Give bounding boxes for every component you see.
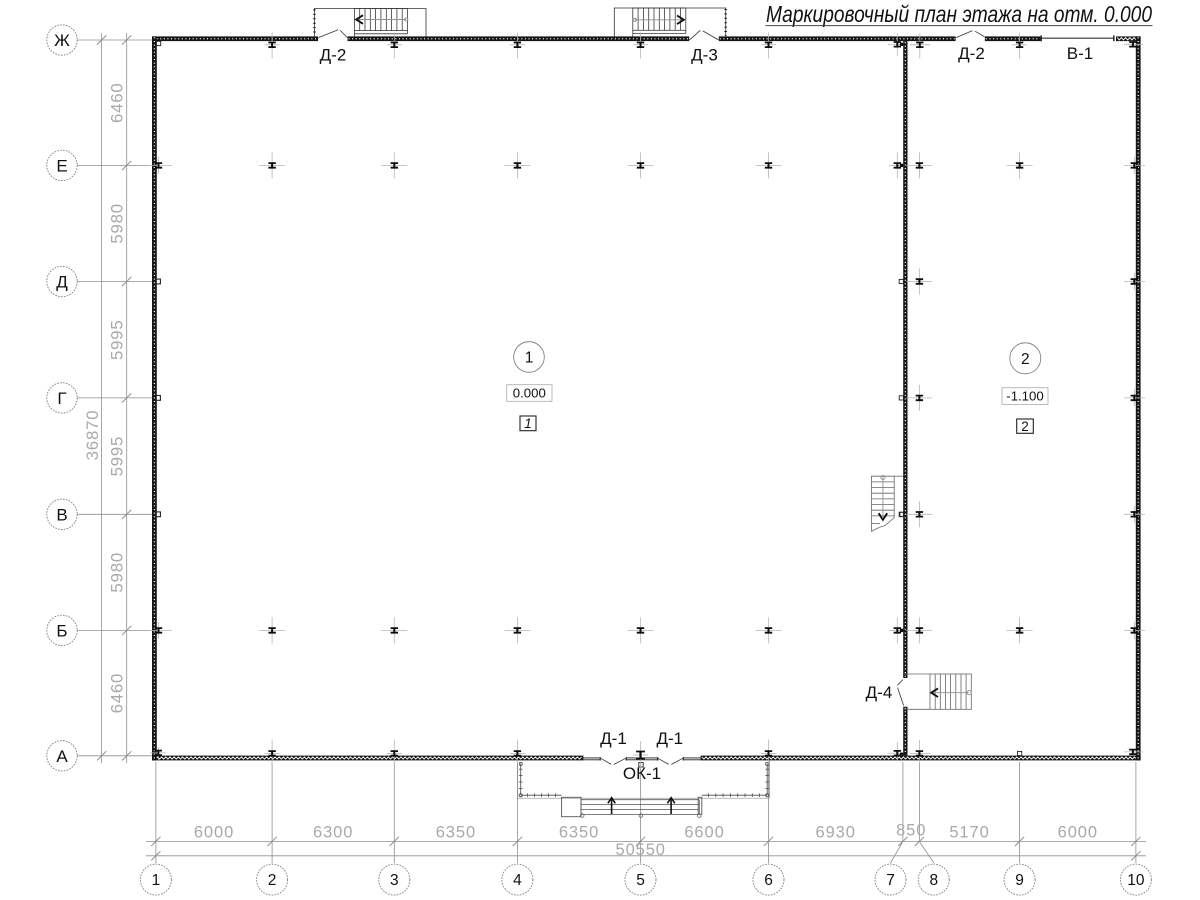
svg-text:6350: 6350 [436,824,476,842]
svg-text:6: 6 [764,872,773,889]
svg-text:6600: 6600 [684,824,724,842]
svg-text:1: 1 [152,872,161,889]
svg-text:8: 8 [929,872,938,889]
svg-text:Д-3: Д-3 [691,46,718,65]
svg-text:Маркировочный план этажа на от: Маркировочный план этажа на отм. 0.000 [766,1,1152,27]
svg-text:Д-1: Д-1 [600,729,627,748]
svg-text:10: 10 [1127,872,1145,889]
svg-text:Б: Б [56,622,67,641]
svg-text:6460: 6460 [108,82,127,123]
svg-text:Д-4: Д-4 [866,683,893,702]
svg-text:0.000: 0.000 [513,386,546,401]
svg-text:6300: 6300 [313,824,353,842]
svg-text:6000: 6000 [1058,824,1098,842]
svg-text:1: 1 [524,416,532,431]
svg-text:1: 1 [525,350,534,367]
svg-text:В-1: В-1 [1067,44,1093,63]
svg-text:9: 9 [1015,872,1024,889]
svg-text:850: 850 [896,822,926,840]
svg-text:6000: 6000 [194,824,234,842]
svg-text:-1.100: -1.100 [1006,389,1043,404]
svg-text:Д: Д [56,273,68,292]
svg-text:5995: 5995 [108,436,127,477]
svg-text:3: 3 [390,872,399,889]
svg-text:2: 2 [1021,351,1030,368]
svg-text:2: 2 [268,872,277,889]
svg-text:36870: 36870 [83,410,102,461]
svg-text:Д-2: Д-2 [320,46,347,65]
svg-text:6930: 6930 [816,824,856,842]
svg-text:7: 7 [886,872,895,889]
svg-text:4: 4 [513,872,522,889]
svg-text:5170: 5170 [949,824,989,842]
svg-text:6350: 6350 [559,824,599,842]
svg-text:5980: 5980 [108,203,127,244]
svg-text:В: В [56,505,67,524]
svg-text:6460: 6460 [108,673,127,714]
svg-text:Е: Е [56,157,67,176]
svg-text:2: 2 [1021,419,1029,434]
svg-text:Ж: Ж [54,31,70,50]
svg-text:Д-2: Д-2 [958,44,985,63]
svg-text:Г: Г [57,389,66,408]
svg-text:5980: 5980 [108,552,127,593]
svg-text:5: 5 [636,872,645,889]
svg-text:Д-1: Д-1 [656,729,683,748]
svg-text:5995: 5995 [108,319,127,360]
svg-text:А: А [56,747,68,766]
svg-text:50550: 50550 [616,841,666,859]
